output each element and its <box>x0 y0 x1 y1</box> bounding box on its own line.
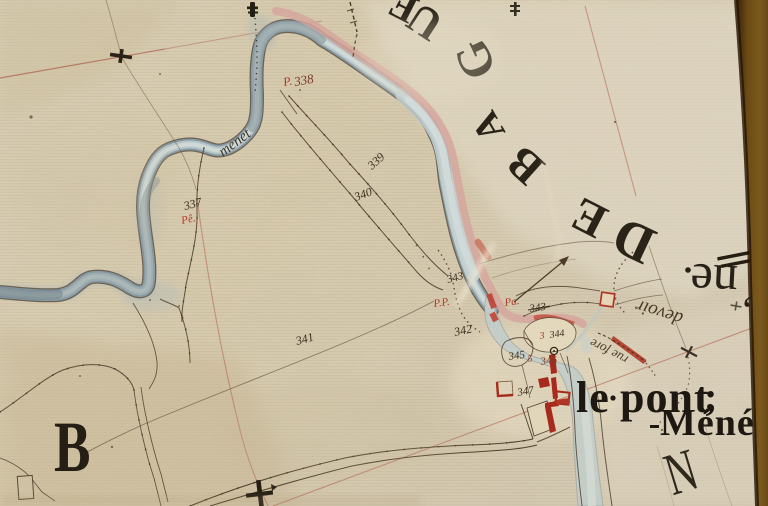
svg-text:344: 344 <box>548 328 565 341</box>
svg-text:ne: ne <box>689 253 739 311</box>
svg-text:P.P.: P.P. <box>432 296 451 310</box>
svg-text:le: le <box>576 373 610 422</box>
svg-text:Méné: Méné <box>660 402 755 444</box>
svg-text:346: 346 <box>539 354 558 368</box>
svg-text:B: B <box>54 407 91 487</box>
svg-text:Pa.: Pa. <box>503 295 520 309</box>
svg-text:345: 345 <box>507 349 526 363</box>
